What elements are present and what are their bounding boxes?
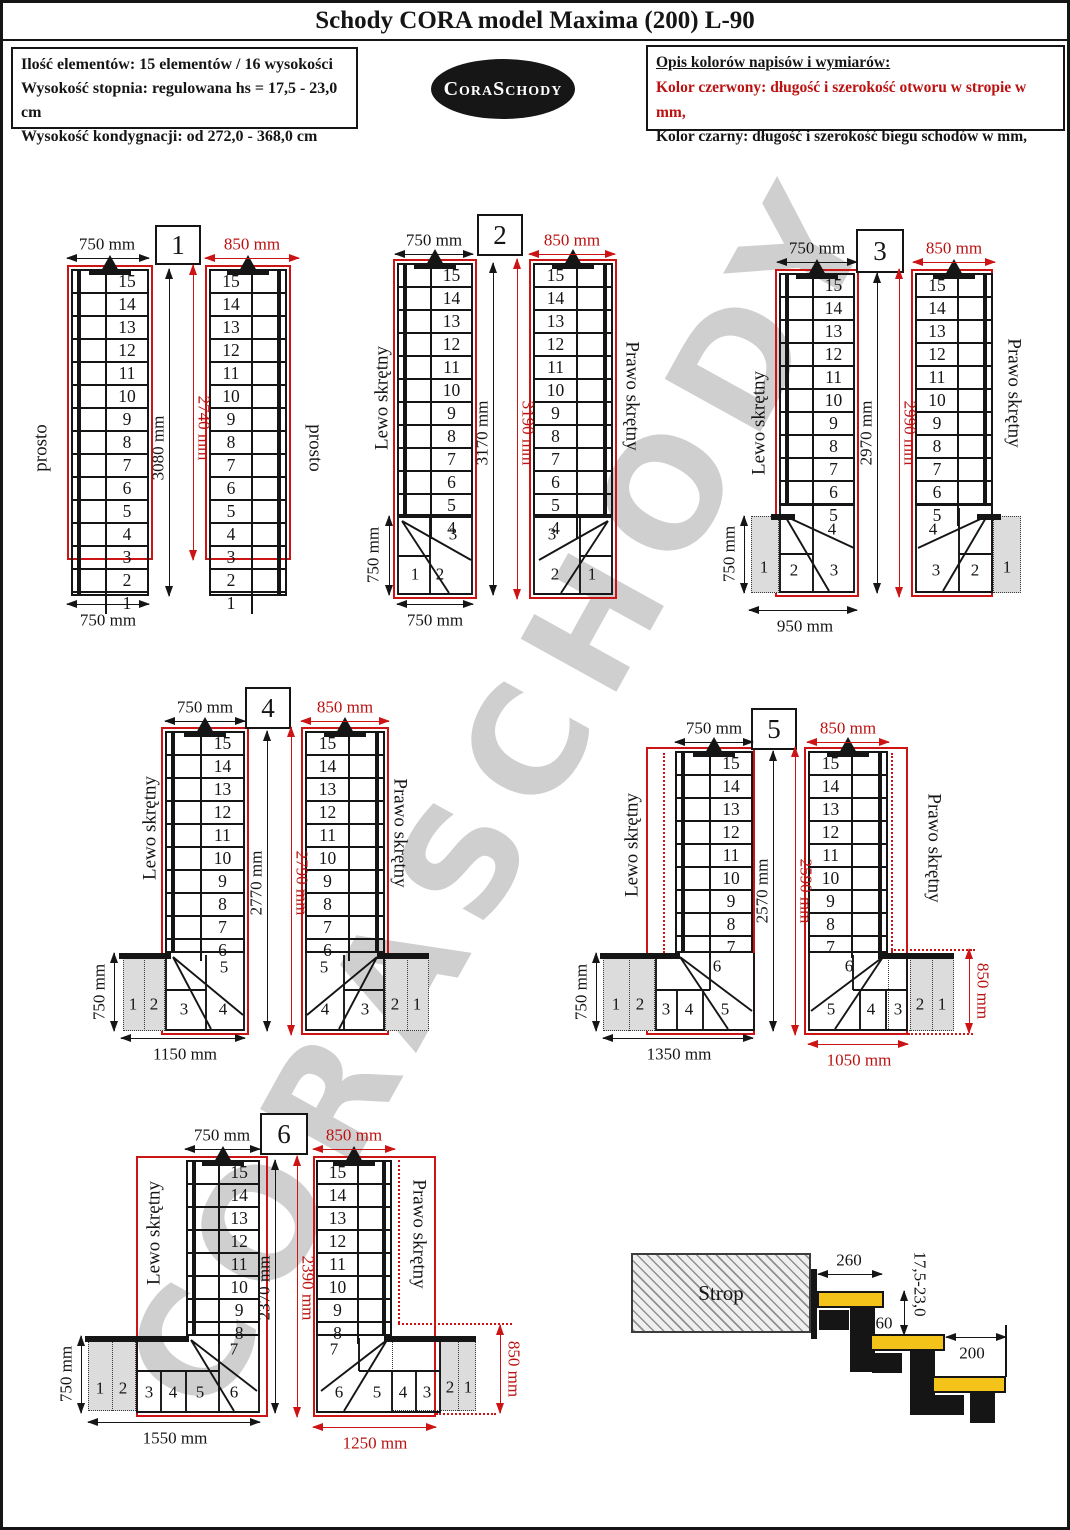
- landing-bar: [119, 953, 171, 959]
- dim-line: [946, 1337, 1006, 1338]
- step-row: 10: [399, 380, 471, 403]
- step-row: 4: [73, 524, 147, 547]
- step-number: 7: [432, 449, 471, 470]
- step-row: 12: [535, 334, 611, 357]
- winder-lines: [915, 506, 993, 593]
- step-row: 2: [73, 570, 147, 593]
- step-row: 12: [810, 822, 886, 845]
- step-number: 9: [917, 413, 957, 434]
- turn-step-number: 2: [446, 1379, 455, 1396]
- step-number: 14: [107, 294, 147, 315]
- step-number: 11: [711, 845, 751, 866]
- turn-step-number: 1: [464, 1379, 473, 1396]
- dim-line: [185, 1149, 260, 1150]
- stringer: [681, 753, 685, 951]
- dim-line: [773, 751, 774, 1031]
- stair-run: 15141312111098: [186, 1160, 260, 1336]
- stair-run: 151413121110987: [808, 751, 888, 953]
- step-row: 13: [917, 321, 991, 344]
- dim-label: 3170 mm: [474, 401, 491, 466]
- page: Schody CORA model Maxima (200) L-90 Iloś…: [0, 0, 1070, 1530]
- dotted-divider: [144, 958, 145, 1031]
- winder-number: 6: [713, 958, 722, 975]
- side-label: Prawo skrętny: [1005, 338, 1024, 447]
- dim-label: 750 mm: [721, 526, 738, 582]
- turn-step-number: 6: [230, 1384, 239, 1401]
- step-row: 7: [167, 917, 243, 940]
- turn-step-number: 3: [932, 562, 941, 579]
- turn-step-number: 4: [219, 1001, 228, 1018]
- dim-line: [877, 273, 878, 593]
- step-number: 14: [535, 288, 576, 309]
- step-number: 11: [107, 363, 147, 384]
- step-row: 8: [810, 914, 886, 937]
- step-number: 11: [814, 367, 853, 388]
- step-row: 6: [399, 472, 471, 495]
- step-number: 12: [307, 802, 348, 823]
- turn-step-number: 4: [321, 1001, 330, 1018]
- dim-label: 950 mm: [777, 618, 833, 635]
- up-arrow-icon: [839, 737, 857, 753]
- dim-line: [275, 1160, 276, 1413]
- step-number: 6: [535, 472, 576, 493]
- step-row: 12: [188, 1231, 258, 1254]
- side-label: prosto: [306, 424, 325, 472]
- step-row: 12: [318, 1231, 390, 1254]
- step-row: 10: [167, 848, 243, 871]
- step-number: 11: [535, 357, 576, 378]
- dim-line: [165, 721, 245, 722]
- step-number: 9: [711, 891, 751, 912]
- step-row: 11: [781, 367, 853, 390]
- step-row: 9: [188, 1300, 258, 1323]
- step-number: 6: [917, 482, 957, 503]
- step-row: 6: [211, 478, 285, 501]
- step-row: 11: [167, 825, 243, 848]
- step-number: 7: [211, 455, 251, 476]
- step-number: 8: [535, 426, 576, 447]
- step-row: 4: [211, 524, 285, 547]
- step-row: 14: [167, 756, 243, 779]
- red-dotted-line: [663, 753, 665, 953]
- step-number: 11: [318, 1254, 357, 1275]
- dim-label: 850 mm: [317, 699, 373, 716]
- cora-schody-logo: CoraSchody: [431, 59, 575, 119]
- step-row: 10: [307, 848, 383, 871]
- step-number: 10: [711, 868, 751, 889]
- support: [872, 1353, 902, 1373]
- step-number: 14: [318, 1185, 357, 1206]
- turn-step-number: 2: [916, 996, 925, 1013]
- turn-step-number: 4: [399, 1384, 408, 1401]
- turn-step-number: 4: [685, 1001, 694, 1018]
- step-row: 13: [535, 311, 611, 334]
- turn-step-number: 5: [827, 1001, 836, 1018]
- step-number: 13: [202, 779, 243, 800]
- gray-landing: [751, 516, 779, 593]
- step-number: 13: [318, 1208, 357, 1229]
- step-number: 8: [810, 914, 851, 935]
- dim-label: 2390 mm: [300, 1256, 317, 1321]
- step-row: 13: [188, 1208, 258, 1231]
- step-row: 10: [73, 386, 147, 409]
- winder-number: 6: [845, 958, 854, 975]
- dim-label: 60: [876, 1315, 893, 1332]
- step-number: 9: [535, 403, 576, 424]
- side-label: Lewo skrętny: [373, 346, 392, 450]
- turn-step-number: 3: [894, 1001, 903, 1018]
- step-number: 11: [307, 825, 348, 846]
- step-number: 10: [814, 390, 853, 411]
- dim-label: 850 mm: [544, 232, 600, 249]
- stringer: [277, 271, 281, 594]
- dim-line: [749, 610, 857, 611]
- dim-line: [493, 263, 494, 595]
- winder-lines: [533, 516, 613, 595]
- step-row: 8: [307, 894, 383, 917]
- step-row: 13: [318, 1208, 390, 1231]
- dim-label: 17,5-23,0: [912, 1251, 929, 1316]
- step-rows: 15141312111098765: [781, 275, 853, 504]
- up-arrow-icon: [426, 249, 444, 265]
- stringer: [77, 271, 81, 594]
- step-number: 7: [202, 917, 243, 938]
- step-row: 10: [781, 390, 853, 413]
- dim-line: [529, 254, 615, 255]
- side-label: Lewo skrętny: [141, 776, 160, 880]
- turn-step-number: 4: [867, 1001, 876, 1018]
- step-row: 14: [677, 776, 751, 799]
- step-row: 13: [677, 799, 751, 822]
- stringer: [171, 733, 175, 951]
- diagram-number: 4: [245, 687, 291, 729]
- step-row: 12: [781, 344, 853, 367]
- turn-step-number: 3: [662, 1001, 671, 1018]
- step-row: 8: [73, 432, 147, 455]
- step-row: 7: [535, 449, 611, 472]
- red-dotted-line: [436, 1413, 496, 1415]
- dim-label: 1550 mm: [143, 1430, 208, 1447]
- step-number: 8: [202, 894, 243, 915]
- turn-step-number: 3: [423, 1384, 432, 1401]
- dim-line: [114, 953, 115, 1031]
- up-arrow-icon: [336, 717, 354, 733]
- dim-label: 2990 mm: [902, 401, 919, 466]
- step-number: 10: [220, 1277, 258, 1298]
- step-number: 13: [814, 321, 853, 342]
- step-row: 8: [167, 894, 243, 917]
- dim-label: 850 mm: [224, 236, 280, 253]
- winder-number: 7: [230, 1341, 239, 1358]
- legend-heading: Opis kolorów napisów i wymiarów:: [656, 51, 1055, 76]
- winder-number: 5: [220, 959, 229, 976]
- diagram-number: 3: [856, 229, 904, 273]
- dim-line: [744, 516, 745, 593]
- legend-black-line: Kolor czarny: długość i szerokość biegu …: [656, 125, 1055, 150]
- step-row: 12: [73, 340, 147, 363]
- step-row: 9: [167, 871, 243, 894]
- step-row: 7: [73, 455, 147, 478]
- step-row: 11: [73, 363, 147, 386]
- dim-label: 750 mm: [686, 720, 742, 737]
- step-rows: 151413121110987654: [399, 265, 471, 514]
- step-row: 11: [917, 367, 991, 390]
- dim-line: [777, 262, 857, 263]
- step-number: 12: [814, 344, 853, 365]
- step-number: 13: [211, 317, 251, 338]
- page-title: Schody CORA model Maxima (200) L-90: [3, 3, 1067, 41]
- step-number: 13: [220, 1208, 258, 1229]
- stair-run: 151413121110987654: [533, 263, 613, 516]
- step-row: 6: [73, 478, 147, 501]
- dim-line: [808, 1044, 908, 1045]
- step-row: 9: [399, 403, 471, 426]
- turn-step-number: 2: [391, 996, 400, 1013]
- step-row: 11: [211, 363, 285, 386]
- step-row: 9: [73, 409, 147, 432]
- step-number: 2: [211, 570, 251, 591]
- step-number: 10: [432, 380, 471, 401]
- dim-line: [389, 516, 390, 595]
- step-rows: 15141312111098765: [917, 275, 991, 504]
- dim-line: [267, 731, 268, 1031]
- step-number: 14: [814, 298, 853, 319]
- step-number: 12: [107, 340, 147, 361]
- step-row: 2: [211, 570, 285, 593]
- step-number: 8: [917, 436, 957, 457]
- stringer: [382, 1162, 386, 1334]
- diagram-number: 1: [155, 225, 201, 265]
- step-number: 3: [211, 547, 251, 568]
- step-row: 9: [677, 891, 751, 914]
- dim-label: 750 mm: [79, 236, 135, 253]
- turn-step-number: 1: [411, 566, 420, 583]
- step-number: 10: [107, 386, 147, 407]
- legend-box: Opis kolorów napisów i wymiarów: Kolor c…: [646, 45, 1065, 131]
- step-row: 8: [399, 426, 471, 449]
- step-number: 1: [211, 593, 251, 614]
- step-number: 8: [107, 432, 147, 453]
- stair-run: 151413121110987654: [397, 263, 473, 516]
- step-row: 7: [399, 449, 471, 472]
- turn-step-number: 3: [145, 1384, 154, 1401]
- dim-line: [596, 953, 597, 1031]
- step-number: 14: [211, 294, 251, 315]
- step-row: 7: [781, 459, 853, 482]
- step-row: 6: [781, 482, 853, 505]
- dim-label: 750 mm: [573, 964, 590, 1020]
- turn-step-number: 5: [196, 1384, 205, 1401]
- step-rows: 151413121110987: [810, 753, 886, 951]
- step-number: 8: [211, 432, 251, 453]
- stringer: [403, 265, 407, 514]
- step-number: 14: [202, 756, 243, 777]
- step-row: 14: [188, 1185, 258, 1208]
- step-row: 8: [535, 426, 611, 449]
- step-row: 9: [535, 403, 611, 426]
- dim-line: [818, 1274, 882, 1275]
- step-number: 11: [917, 367, 957, 388]
- step-row: 14: [535, 288, 611, 311]
- stair-run: 15141312111098: [316, 1160, 392, 1336]
- step-number: 14: [810, 776, 851, 797]
- dim-line: [313, 1149, 395, 1150]
- step-rows: 151413121110987654: [535, 265, 611, 514]
- step-number: 5: [107, 501, 147, 522]
- stair-run: 1514131211109876: [305, 731, 385, 953]
- step-row: 8: [917, 436, 991, 459]
- dim-line: [904, 1291, 905, 1335]
- step-number: 13: [711, 799, 751, 820]
- stair-run: 151413121110987: [675, 751, 753, 953]
- step-row: 13: [399, 311, 471, 334]
- step-row: 10: [211, 386, 285, 409]
- step-row: 14: [810, 776, 886, 799]
- step-row: 12: [307, 802, 383, 825]
- up-arrow-icon: [196, 717, 214, 733]
- dotted-divider: [112, 1340, 113, 1411]
- winder-number: 4: [828, 521, 837, 538]
- step-number: 9: [211, 409, 251, 430]
- stringer: [878, 753, 882, 951]
- stair-run: 151413121110987654321: [71, 269, 149, 596]
- step-number: 8: [307, 894, 348, 915]
- step-number: 14: [307, 756, 348, 777]
- dim-label: 750 mm: [407, 612, 463, 629]
- step-number: 7: [917, 459, 957, 480]
- dim-line: [67, 604, 149, 605]
- dim-label: 750 mm: [91, 964, 108, 1020]
- dim-label: 750 mm: [80, 612, 136, 629]
- step-row: 7: [307, 917, 383, 940]
- step-row: 6: [917, 482, 991, 505]
- step-number: 10: [535, 380, 576, 401]
- step-row: 13: [781, 321, 853, 344]
- turn-step-number: 1: [1003, 559, 1012, 576]
- step-number: 12: [202, 802, 243, 823]
- dim-line: [301, 721, 389, 722]
- dim-label: 1250 mm: [343, 1435, 408, 1452]
- side-label: Prawo skrętny: [623, 341, 642, 450]
- red-dotted-line: [891, 753, 893, 953]
- dotted-divider: [407, 958, 408, 1031]
- support: [934, 1395, 964, 1415]
- stair-run: 15141312111098765: [915, 273, 993, 506]
- step-row: 6: [535, 472, 611, 495]
- dim-line: [807, 742, 889, 743]
- step-number: 11: [211, 363, 251, 384]
- step-number: 10: [810, 868, 851, 889]
- step-number: 12: [211, 340, 251, 361]
- dim-label: 2590 mm: [798, 859, 815, 924]
- step-rows: 15141312111098: [188, 1162, 258, 1334]
- step-number: 9: [432, 403, 471, 424]
- winder-number: 7: [330, 1341, 339, 1358]
- step-number: 10: [307, 848, 348, 869]
- dim-line: [397, 604, 473, 605]
- step-number: 12: [318, 1231, 357, 1252]
- step-number: 5: [432, 495, 471, 516]
- tread: [870, 1334, 945, 1351]
- dim-line: [675, 742, 753, 743]
- step-number: 12: [917, 344, 957, 365]
- dim-label: 3190 mm: [520, 401, 537, 466]
- step-row: 12: [167, 802, 243, 825]
- step-number: 12: [711, 822, 751, 843]
- step-number: 7: [814, 459, 853, 480]
- dim-line: [603, 1038, 753, 1039]
- step-rows: 151413121110987: [677, 753, 751, 951]
- info-line: Wysokość kondygnacji: od 272,0 - 368,0 c…: [21, 125, 348, 149]
- step-number: 8: [432, 426, 471, 447]
- dim-label: 750 mm: [58, 1346, 75, 1402]
- step-number: 2: [107, 570, 147, 591]
- step-number: 12: [810, 822, 851, 843]
- dim-label: 850 mm: [326, 1127, 382, 1144]
- stair-run: 15141312111098765: [779, 273, 855, 506]
- winder-number: 3: [449, 526, 458, 543]
- turn-step-number: 1: [612, 996, 621, 1013]
- step-row: 10: [677, 868, 751, 891]
- dim-label: 750 mm: [406, 232, 462, 249]
- dim-label: 750 mm: [177, 699, 233, 716]
- step-row: 5: [211, 501, 285, 524]
- step-number: 14: [220, 1185, 258, 1206]
- dim-label: 2970 mm: [858, 401, 875, 466]
- dim-label: 2790 mm: [294, 851, 311, 916]
- step-row: 12: [677, 822, 751, 845]
- step-number: 13: [107, 317, 147, 338]
- turn-step-number: 2: [150, 996, 159, 1013]
- step-row: 9: [810, 891, 886, 914]
- winder-number: 5: [320, 959, 329, 976]
- step-number: 6: [107, 478, 147, 499]
- step-number: 10: [202, 848, 243, 869]
- dim-label: 850 mm: [506, 1341, 523, 1397]
- info-box: Ilość elementów: 15 elementów / 16 wysok…: [11, 47, 358, 129]
- step-row: 14: [307, 756, 383, 779]
- step-row: 8: [677, 914, 751, 937]
- step-row: 5: [535, 495, 611, 518]
- side-label: prosto: [32, 424, 51, 472]
- stair-run: 1514131211109876: [165, 731, 245, 953]
- turn-step-number: 3: [180, 1001, 189, 1018]
- stair-run: 151413121110987654321: [209, 269, 287, 596]
- step-number: 11: [220, 1254, 258, 1275]
- step-row: 13: [211, 317, 285, 340]
- stringer: [375, 733, 379, 951]
- dim-label: 1350 mm: [647, 1046, 712, 1063]
- step-row: 11: [535, 357, 611, 380]
- turn-step-number: 5: [373, 1384, 382, 1401]
- step-number: 4: [107, 524, 147, 545]
- step-row: 11: [307, 825, 383, 848]
- dim-line: [88, 1422, 260, 1423]
- step-row: 10: [535, 380, 611, 403]
- step-row: 9: [211, 409, 285, 432]
- legend-red-line: Kolor czerwony: długość i szerokość otwo…: [656, 76, 1055, 126]
- dim-label: 2770 mm: [248, 851, 265, 916]
- step-row: 13: [167, 779, 243, 802]
- side-label: Prawo skrętny: [391, 778, 410, 887]
- dotted-divider: [629, 958, 630, 1031]
- dim-label: 2370 mm: [256, 1256, 273, 1321]
- strop-block: Strop: [631, 1253, 811, 1333]
- step-row: 13: [73, 317, 147, 340]
- turn-step-number: 5: [721, 1001, 730, 1018]
- step-number: 9: [107, 409, 147, 430]
- diagram-number: 2: [477, 214, 523, 256]
